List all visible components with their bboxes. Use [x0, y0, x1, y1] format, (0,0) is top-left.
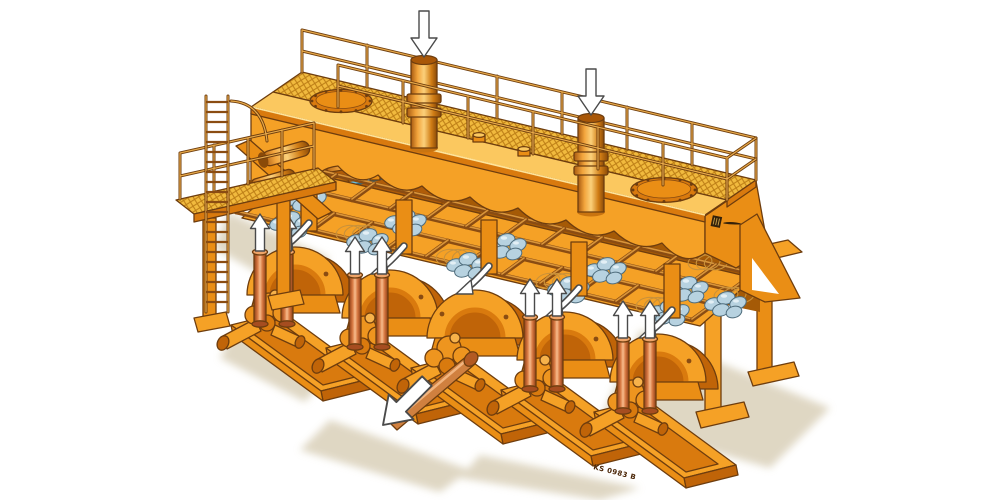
platform-leg — [277, 196, 290, 300]
illustration-canvas: KS 0983 B — [0, 0, 1000, 500]
deck-peg — [518, 147, 530, 156]
deck-peg — [473, 133, 485, 142]
